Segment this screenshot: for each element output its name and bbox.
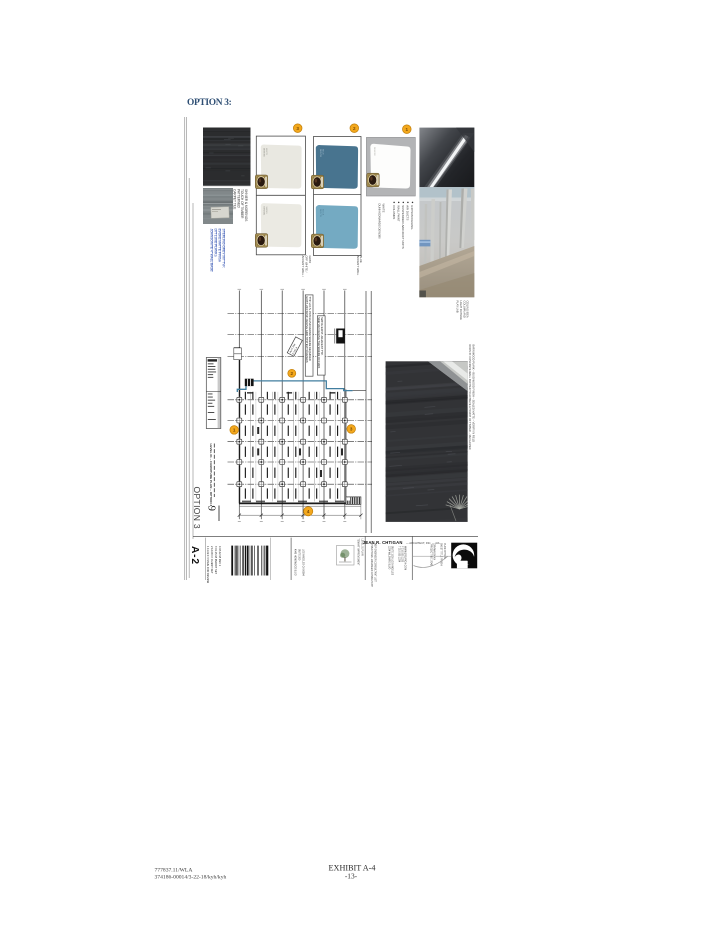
svg-text:374186-00014/3-22-18/kyh/kyh: 374186-00014/3-22-18/kyh/kyh [155,875,227,881]
svg-text:COLUMN AND: COLUMN AND [462,301,466,318]
svg-text:AGUA: AGUA [321,209,324,216]
svg-text:TYP. U.O.N. PATCH AND REPAIR W: TYP. U.O.N. PATCH AND REPAIR WHERE REQUI… [308,297,312,361]
svg-text:3 01.15.18 PERMIT SET: 3 01.15.18 PERMIT SET [214,546,218,574]
svg-text:T 310.555.1234: T 310.555.1234 [397,546,399,563]
svg-text:SUITE 200: SUITE 200 [298,549,300,561]
svg-text:ROOM B: CONCRETE WALL PAINTED: ROOM B: CONCRETE WALL PAINTED TO ACHIEVE… [468,345,472,450]
svg-text:DE5776: DE5776 [319,209,321,218]
svg-text:-13-: -13- [345,872,358,881]
svg-text:DRAWN BY KH: DRAWN BY KH [432,544,435,560]
svg-text:AIR DUCTS: AIR DUCTS [406,205,410,220]
svg-text:MEP ENGINEER CONSULTANT LIST: MEP ENGINEER CONSULTANT LIST [374,543,377,582]
svg-text:COLUMNS: COLUMNS [392,205,396,219]
svg-text:OPTION 3: OPTION 3 [192,487,202,530]
svg-text:2 12.08.17 CLIENT SET: 2 12.08.17 CLIENT SET [210,546,214,574]
svg-text:LVT LUXE PLANKS: LVT LUXE PLANKS [214,229,218,257]
svg-text:SHNIER & MORENOS: SHNIER & MORENOS [244,189,248,221]
svg-text:CARPET TILE: CARPET TILE [232,189,236,209]
svg-text:PROJECT NO 17042: PROJECT NO 17042 [429,544,431,567]
svg-text:SWISS: SWISS [265,207,267,215]
svg-text:DEW380: DEW380 [373,147,375,157]
svg-text:1 11.02.17 ISSUE FOR REVIEW: 1 11.02.17 ISSUE FOR REVIEW [206,546,210,584]
svg-text:TENANT IMPROVEMENT: TENANT IMPROVEMENT [357,539,360,566]
svg-text:WHITE: WHITE [265,148,267,156]
svg-text:SHEET TITLE FINISH: SHEET TITLE FINISH [440,543,442,566]
svg-text:LIGHT FIXTURE: LIGHT FIXTURE [459,301,463,321]
svg-text:EVOKE MATTE FINISH: EVOKE MATTE FINISH [218,229,222,263]
svg-text:9: 9 [206,506,218,512]
svg-text:2: 2 [353,126,356,131]
svg-text:TOUCH OF TIMBER: TOUCH OF TIMBER [240,189,244,219]
svg-text:OFF WHITE /: OFF WHITE / [305,256,309,273]
svg-text:GYPSUM CEILING: GYPSUM CEILING [410,205,414,229]
svg-text:GRAY: GRAY [308,256,312,264]
svg-text:3: 3 [296,126,299,131]
svg-text:SUITE 1500 LOS ANGELES: SUITE 1500 LOS ANGELES [390,546,393,576]
svg-text:1: 1 [233,428,236,433]
svg-text:JEAN R. CHTIGAN: JEAN R. CHTIGAN [363,540,403,545]
svg-text:2: 2 [291,371,294,376]
svg-text:BLUE: BLUE [321,149,323,155]
svg-text:3: 3 [350,427,353,432]
svg-text:OPTION 3:: OPTION 3: [187,98,232,108]
svg-text:1: 1 [406,127,409,132]
svg-text:1234 WILSHIRE BLVD: 1234 WILSHIRE BLVD [387,546,389,570]
svg-text:BARN WOOD PLANK – BLVD WOOD FI: BARN WOOD PLANK – BLVD WOOD FINISH – SEA… [471,345,475,443]
svg-text:PATTERNED: PATTERNED [236,189,240,209]
svg-text:4 03.22.18 REV 1: 4 03.22.18 REV 1 [218,546,222,567]
svg-text:STERLING GREY 967 TYP.: STERLING GREY 967 TYP. [222,229,226,269]
svg-text:F 310.555.1235: F 310.555.1235 [400,546,402,563]
svg-text:777837.11/WLA: 777837.11/WLA [155,868,193,874]
svg-text:JOHNSONITE 4″ WALL BASE: JOHNSONITE 4″ WALL BASE [210,229,214,272]
svg-text:ACCENT WALL /: ACCENT WALL / [301,256,305,277]
svg-text:A-2: A-2 [189,546,200,565]
svg-text:WALL PAINT: WALL PAINT [396,205,400,222]
svg-text:4045 HOMEWOOD BLVD: 4045 HOMEWOOD BLVD [294,549,296,576]
svg-text:DEW380: DEW380 [262,148,264,158]
svg-text:LOS ANGELES CA 90064: LOS ANGELES CA 90064 [302,549,305,576]
svg-text:SUSPENDED HVAC/DUCT UNITS: SUSPENDED HVAC/DUCT UNITS [401,205,405,249]
svg-text:BLUE: BLUE [359,256,363,263]
svg-text:PLAY LAB:: PLAY LAB: [456,301,460,314]
svg-text:4: 4 [307,509,310,514]
svg-text:DEW341: DEW341 [262,207,264,217]
svg-text:DUNN-EDWARDS DEW380: DUNN-EDWARDS DEW380 [377,204,381,240]
svg-text:LEVEL 01 – FURNITURE PLAN – OP: LEVEL 01 – FURNITURE PLAN – OPTION 3 [209,444,213,507]
svg-text:MATCH EXIST. ADJACENT TYP.: MATCH EXIST. ADJACENT TYP. [320,317,324,355]
svg-text:ACCENT WALL: ACCENT WALL [356,256,360,276]
svg-text:WWW.JRCARCH.COM: WWW.JRCARCH.COM [403,546,406,570]
svg-text:STRUCTURAL ENGINEER CONSULTANT: STRUCTURAL ENGINEER CONSULTANT [370,543,373,587]
svg-text:DE5783: DE5783 [319,149,321,158]
svg-text:CEILING IDEA: CEILING IDEA [466,301,470,318]
